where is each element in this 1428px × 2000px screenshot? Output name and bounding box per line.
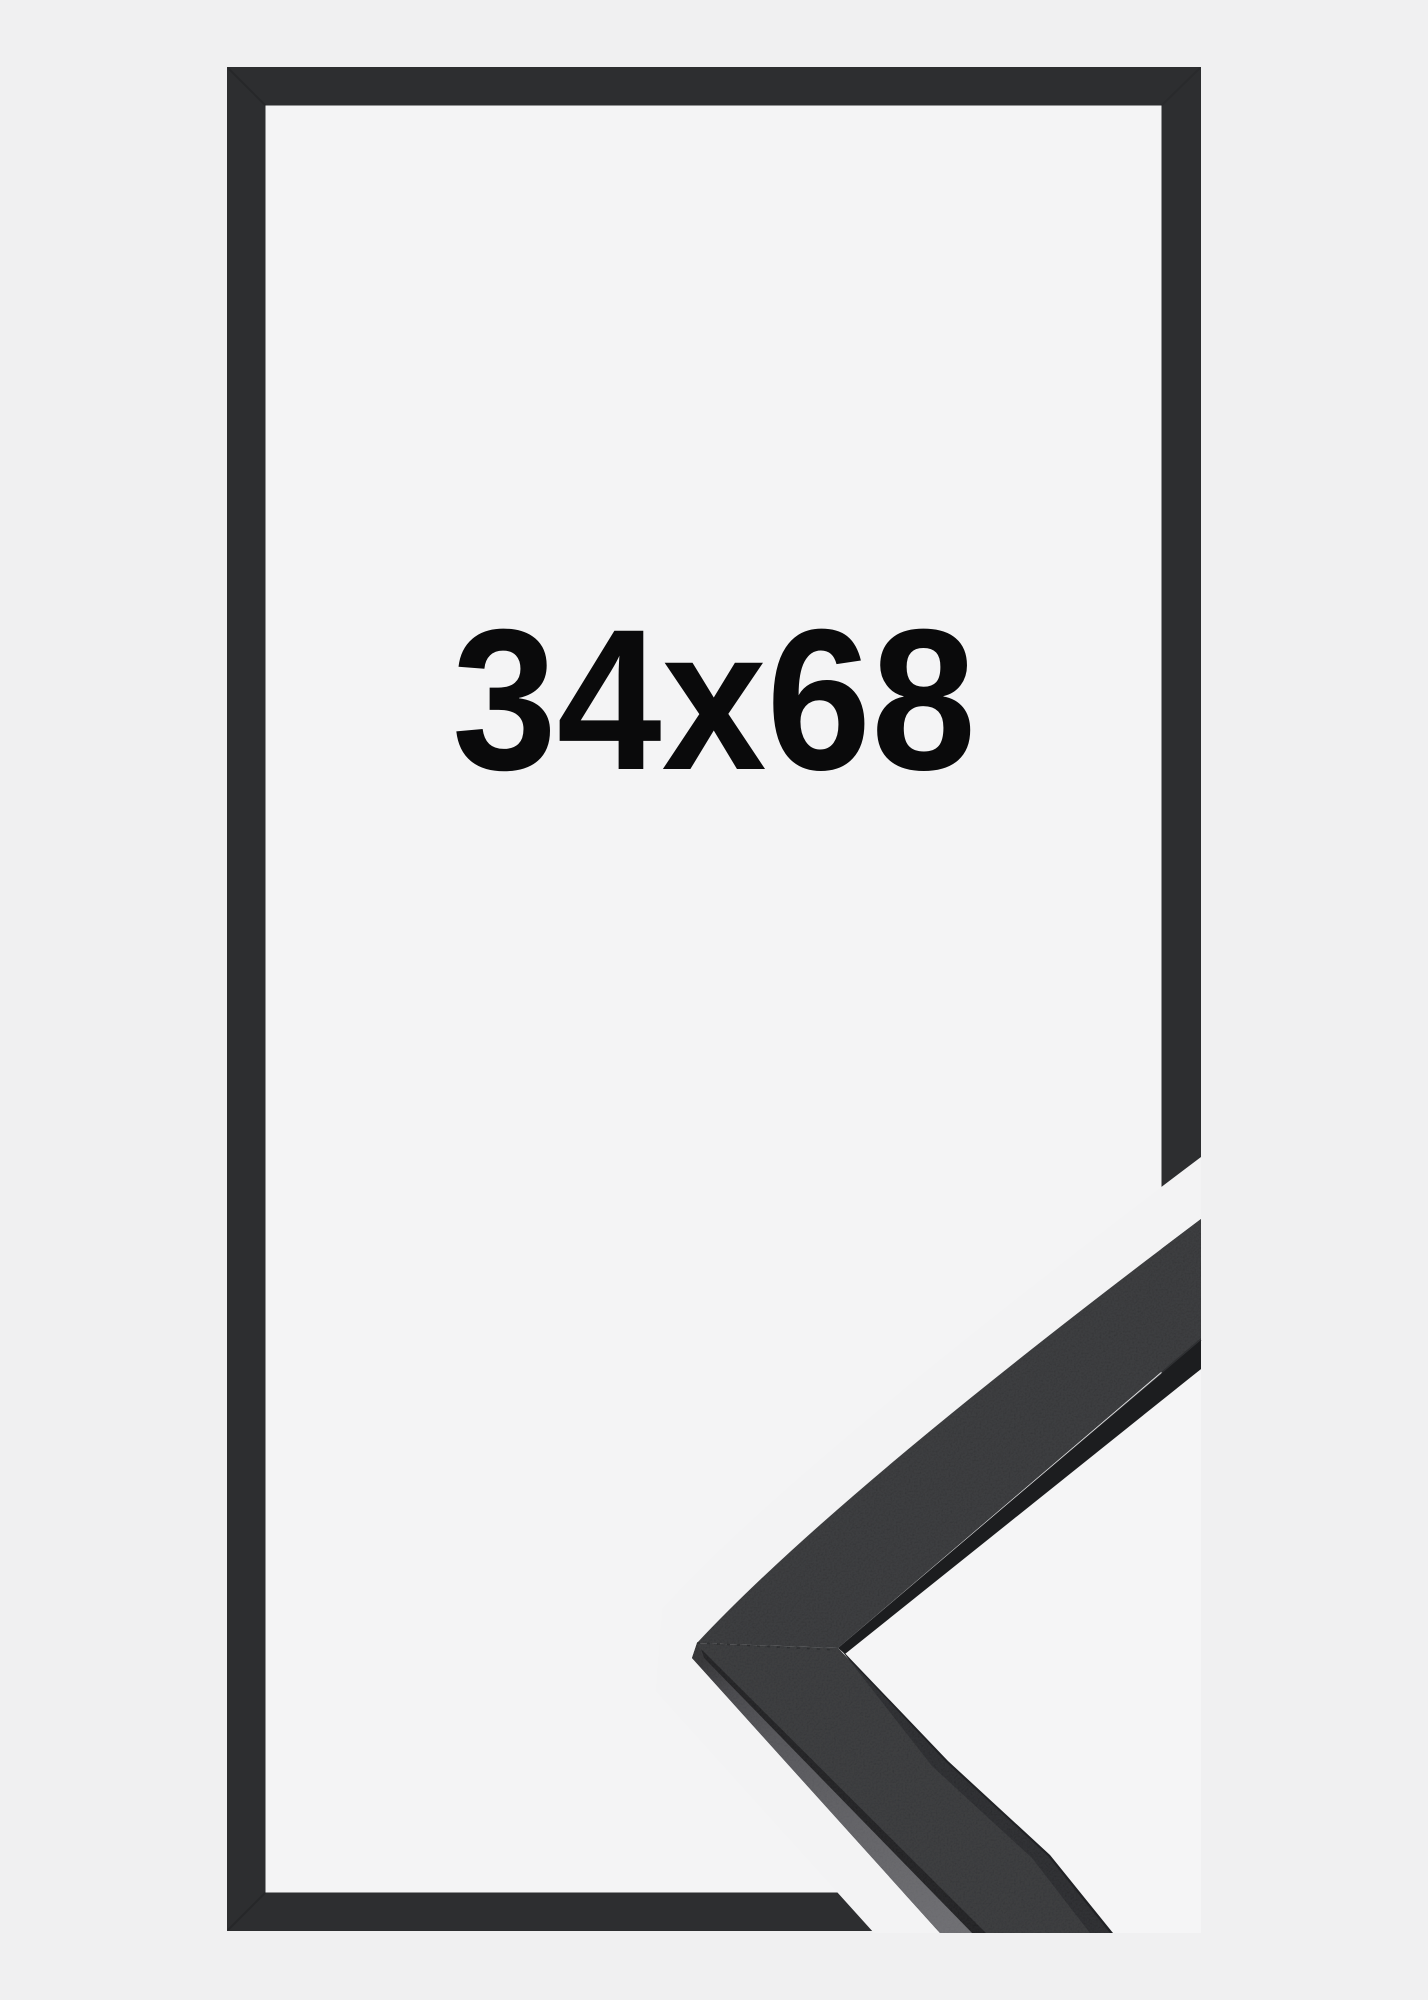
svg-text:34x68: 34x68 [452, 587, 976, 812]
